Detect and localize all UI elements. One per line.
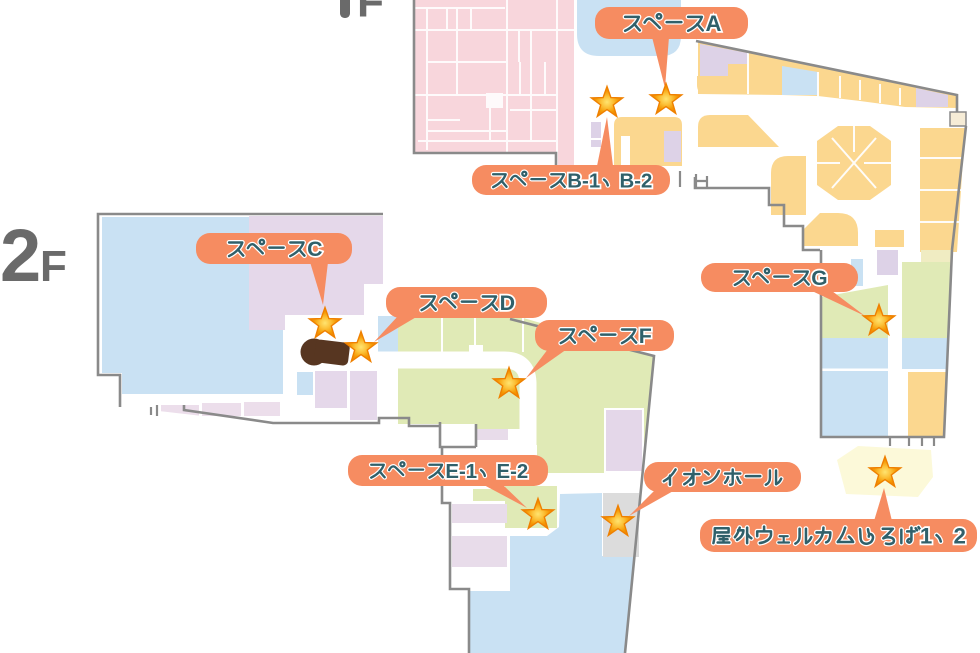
svg-text:C: C [307, 237, 322, 261]
svg-text:1: 1 [920, 524, 932, 549]
svg-text:B-1: B-1 [567, 170, 600, 192]
svg-text:G: G [811, 267, 827, 290]
svg-text:F: F [639, 324, 652, 348]
svg-text:A: A [706, 11, 722, 36]
svg-text:B-2: B-2 [620, 170, 653, 192]
svg-text:2: 2 [0, 214, 41, 297]
svg-text:E-1: E-1 [445, 461, 477, 483]
svg-text:2: 2 [954, 524, 966, 549]
svg-text:F: F [357, 0, 384, 27]
svg-text:E-2: E-2 [497, 461, 529, 483]
svg-text:D: D [500, 291, 515, 315]
svg-text:F: F [40, 242, 67, 291]
